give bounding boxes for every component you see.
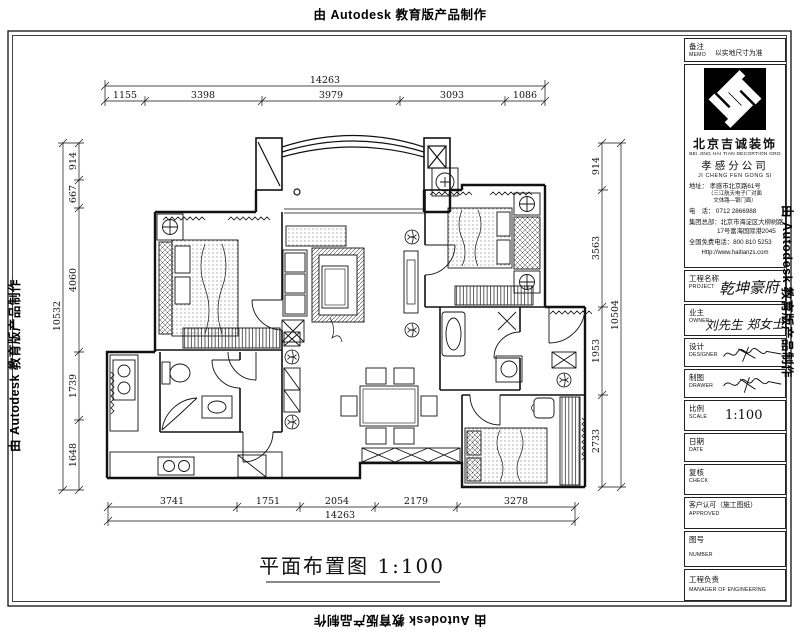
owner-name: 刘先生 郑女士 (705, 313, 784, 333)
company-hq1: 集团总部：北京市海淀区大柳树路 (685, 216, 785, 227)
dim-right-overall: 10504 (610, 300, 621, 330)
company-branch-en: JI CHENG FEN GONG SI (685, 173, 785, 179)
plant-icon (285, 350, 299, 364)
pillow (497, 240, 510, 264)
drawer-box: 制图 DRAWER (684, 369, 786, 398)
company-address: 地址： 孝感市北京路61号 (685, 179, 785, 191)
pillow (467, 458, 481, 481)
svg-text:1648: 1648 (68, 443, 79, 467)
manager-label-en: MANAGER OF ENGINEERING (685, 584, 785, 594)
svg-text:3979: 3979 (319, 90, 343, 101)
svg-text:1751: 1751 (256, 496, 280, 507)
armchair (534, 398, 554, 418)
entry-hall-furniture (552, 352, 576, 387)
svg-text:2733: 2733 (591, 429, 602, 453)
dim-top-overall: 14263 (310, 75, 340, 86)
date-label-en: DATE (685, 446, 785, 454)
designer-box: 设计 DESIGNER (684, 338, 786, 367)
memo-value: 以实地尺寸为准 (715, 39, 763, 59)
svg-text:3278: 3278 (504, 496, 528, 507)
kitchen-door (243, 432, 273, 462)
dim-bottom-overall: 14263 (325, 510, 355, 521)
shower-door (162, 398, 197, 430)
sofa (286, 226, 346, 246)
svg-text:1155: 1155 (113, 90, 137, 101)
check-label: 复核 (685, 465, 785, 477)
plant-icon (405, 230, 419, 244)
number-label: 图号 (685, 532, 785, 544)
drawing-title: 平面布置图 1:100 (259, 554, 445, 582)
bathtub (442, 312, 465, 356)
pillow (175, 246, 190, 273)
memo-box: 备注 MEMO 以实地尺寸为准 (684, 38, 786, 62)
pillow (175, 277, 190, 304)
bedside-lamp-icon (520, 197, 535, 212)
washstand (496, 356, 522, 382)
edu-stamp-left: 由 Autodesk 教育版产品制作 (4, 279, 23, 452)
manager-label: 工程负责 (685, 570, 785, 584)
basin (501, 361, 517, 377)
company-address-note2: 文体路—银门面） (685, 198, 785, 205)
living-room-furniture (282, 226, 419, 342)
edu-stamp-right: 由 Autodesk 教育版产品制作 (779, 205, 798, 378)
company-hq2: 17号富海国际港2045 (685, 227, 785, 236)
wc-fixtures (162, 362, 232, 430)
wardrobe (183, 328, 280, 348)
company-logo-icon (704, 68, 766, 130)
memo-label-en: MEMO (685, 51, 715, 59)
svg-text:2179: 2179 (404, 496, 428, 507)
svg-text:667: 667 (68, 185, 79, 203)
scale-box: 比例 SCALE 1:100 (684, 400, 786, 431)
svg-text:914: 914 (591, 157, 602, 175)
svg-text:2054: 2054 (325, 496, 349, 507)
number-label-en: NUMBER (685, 544, 785, 559)
svg-text:平面布置图 1:100: 平面布置图 1:100 (259, 554, 445, 578)
company-box: 北京吉诚装饰 BEI JING HAI TIAN DECORTION GRO 孝… (684, 64, 786, 268)
memo-label: 备注 (685, 39, 715, 51)
dim-left-overall: 10532 (52, 301, 63, 331)
chair (421, 396, 437, 416)
scale-value: 1:100 (725, 408, 762, 423)
tv (407, 260, 415, 304)
manager-box: 工程负责 MANAGER OF ENGINEERING (684, 569, 786, 601)
vanity (202, 396, 232, 418)
bathroom2-door (494, 332, 520, 358)
svg-text:4060: 4060 (68, 268, 79, 292)
wc-door (212, 360, 240, 388)
bathroom2-fixtures (442, 312, 522, 382)
balcony-arc-window (282, 136, 424, 158)
company-name-cn: 北京吉诚装饰 (685, 135, 785, 152)
approved-label: 客户认可（施工图纸） (685, 498, 785, 510)
headboard (159, 242, 172, 334)
date-label: 日期 (685, 434, 785, 446)
owner-box: 业主 OWNER 刘先生 郑女士 (684, 304, 786, 336)
toilet-tank (162, 362, 170, 384)
svg-text:3398: 3398 (191, 90, 215, 101)
shower (498, 312, 516, 330)
project-name: 乾坤豪府 (719, 276, 780, 299)
number-box: 图号 NUMBER (684, 531, 786, 567)
plant-icon (285, 415, 299, 429)
bedroom2-furniture (448, 193, 540, 305)
dining-furniture (284, 332, 460, 462)
company-website: Http://www.haitianzs.com (685, 247, 785, 256)
bedroom3-door (470, 395, 500, 425)
company-tel: 电 话： 0712 2866988 (685, 205, 785, 216)
svg-text:3563: 3563 (591, 236, 602, 260)
wc-hall-door (228, 352, 256, 380)
check-label-en: CHECK (685, 477, 785, 485)
company-address-note1: （三江航天电子厂对面 (685, 191, 785, 198)
svg-text:3093: 3093 (440, 90, 464, 101)
company-branch-cn: 孝感分公司 (685, 157, 785, 173)
chair (394, 368, 414, 384)
wardrobe (455, 286, 533, 305)
chair (366, 428, 386, 444)
chaise (283, 250, 307, 316)
chair (341, 396, 357, 416)
edu-stamp-top: 由 Autodesk 教育版产品制作 (0, 4, 800, 23)
cabinet (514, 217, 540, 269)
designer-signature (721, 342, 783, 366)
svg-text:914: 914 (68, 152, 79, 170)
sink-bowl (118, 382, 130, 394)
toilet (170, 364, 190, 382)
svg-text:1953: 1953 (591, 339, 602, 363)
company-hotline: 全国免费电话：800 810 5253 (685, 236, 785, 247)
svg-text:3741: 3741 (160, 496, 184, 507)
pillow (497, 212, 510, 236)
date-box: 日期 DATE (684, 433, 786, 462)
floorplan-sheet: 14263 1155 3398 3979 3093 1086 3741 1751… (0, 0, 800, 640)
bedside-lamp-icon (163, 220, 178, 235)
chair (366, 368, 386, 384)
sink-bowl (118, 365, 130, 377)
coffee-table (322, 266, 348, 308)
sheet-frame (8, 31, 791, 606)
drawer-signature (721, 373, 783, 397)
wardrobe (560, 397, 580, 485)
bedroom1-furniture (157, 214, 280, 348)
edu-stamp-bottom: 由 Autodesk 教育版产品制作 (0, 612, 800, 631)
check-box: 复核 CHECK (684, 464, 786, 495)
approved-label-en: APPROVED (685, 510, 785, 518)
balcony (256, 136, 450, 214)
counter (110, 452, 282, 478)
basin (208, 401, 226, 413)
dining-table (360, 386, 418, 426)
bedroom1-door (252, 300, 282, 330)
pillow (467, 431, 481, 455)
bedroom3-furniture (465, 397, 580, 485)
company-name-en: BEI JING HAI TIAN DECORTION GRO (685, 152, 785, 157)
plant-icon (405, 323, 419, 337)
project-box: 工程名称 PROJECT 乾坤豪府 (684, 270, 786, 302)
svg-text:1086: 1086 (513, 90, 537, 101)
svg-text:1739: 1739 (68, 374, 79, 398)
chair (394, 428, 414, 444)
approved-box: 客户认可（施工图纸） APPROVED (684, 497, 786, 529)
plant-icon (557, 373, 571, 387)
